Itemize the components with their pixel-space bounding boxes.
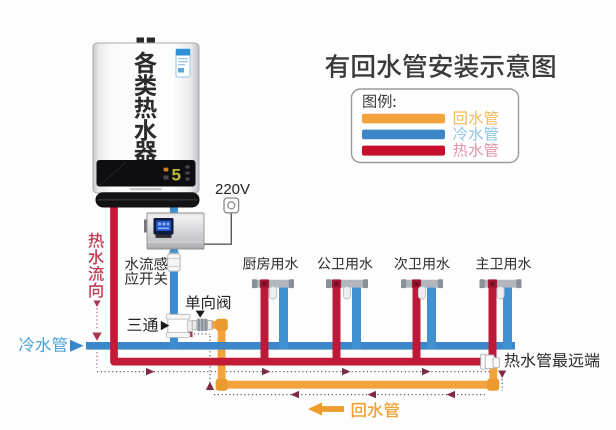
svg-text:5: 5 — [172, 166, 181, 185]
svg-text:220V: 220V — [215, 181, 250, 198]
